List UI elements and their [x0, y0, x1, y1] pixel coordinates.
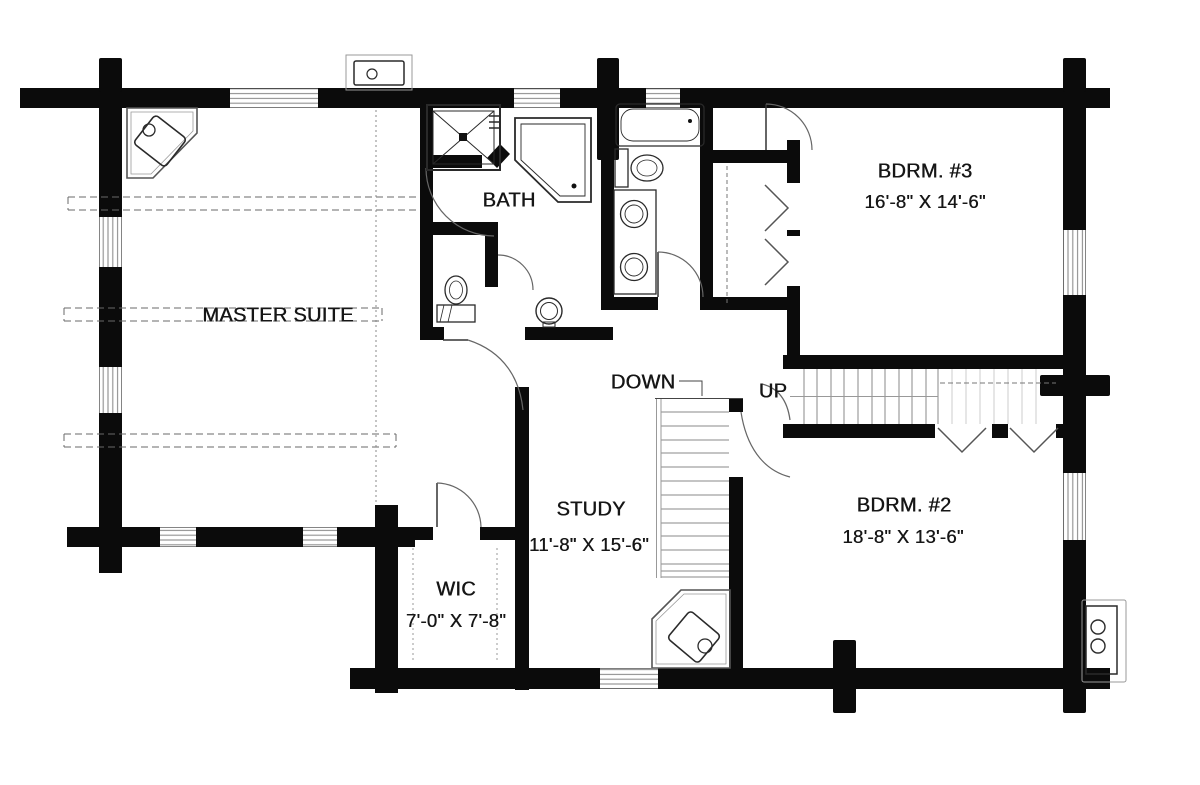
dims-bedroom-2: 18'-8" X 13'-6" — [842, 526, 963, 548]
window — [600, 669, 658, 689]
bathtub — [616, 104, 704, 146]
pedestal-sink — [536, 298, 562, 327]
window — [1064, 473, 1086, 540]
wood-stove-master — [127, 108, 197, 178]
dims-wic: 7'-0" X 7'-8" — [406, 610, 506, 632]
label-master-suite: MASTER SUITE — [202, 305, 353, 328]
wic-door — [437, 483, 481, 527]
label-wic: WIC — [436, 579, 476, 602]
exterior-sink — [346, 55, 412, 90]
dims-bedroom-3: 16'-8" X 14'-6" — [864, 191, 985, 213]
closet-rod — [413, 548, 497, 660]
hall-bath-door — [658, 252, 703, 297]
label-stairs-down: DOWN — [611, 372, 676, 395]
toilet — [615, 149, 663, 187]
dims-study: 11'-8" X 15'-6" — [529, 534, 649, 556]
bifold-door — [765, 239, 788, 285]
floorplan-drawing — [0, 0, 1200, 785]
wood-stove-study — [652, 590, 730, 668]
master-entry-door — [443, 340, 523, 410]
window — [1064, 230, 1086, 295]
wc-door — [498, 255, 533, 290]
window — [100, 367, 122, 413]
window — [303, 528, 337, 547]
label-study: STUDY — [556, 499, 625, 522]
bifold-door — [938, 428, 986, 452]
log-wall-end — [833, 640, 856, 713]
exterior-walls — [20, 58, 1110, 713]
toilet — [437, 276, 475, 322]
label-bedroom-2: BDRM. #2 — [857, 495, 952, 518]
down-label-leader — [679, 381, 702, 396]
doors — [426, 104, 812, 527]
double-vanity — [614, 190, 656, 294]
bifold-door — [1010, 428, 1058, 452]
log-wall-end — [99, 58, 122, 92]
staircase-up — [762, 369, 1056, 424]
log-wall-end — [1063, 668, 1086, 713]
bedroom-2-door — [741, 412, 790, 477]
label-bath: BATH — [482, 190, 535, 213]
floor-plan: MASTER SUITE BATH BDRM. #3 16'-8" X 14'-… — [0, 0, 1200, 785]
log-wall-end — [1063, 58, 1086, 92]
window — [514, 89, 560, 108]
window — [230, 89, 318, 108]
label-stairs-up: UP — [759, 381, 787, 404]
bifold-door — [765, 185, 788, 231]
window — [160, 528, 196, 547]
label-bedroom-3: BDRM. #3 — [878, 161, 973, 184]
log-wall-end — [1040, 375, 1110, 396]
window — [100, 217, 122, 267]
